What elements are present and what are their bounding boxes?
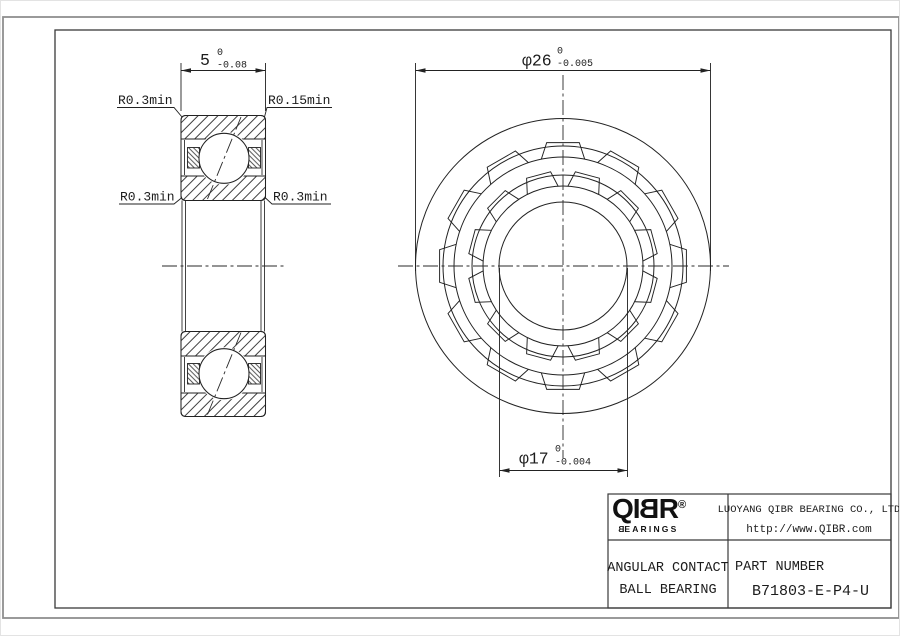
front-view: φ26 0 -0.005 φ17 0 -0.004 <box>398 47 729 478</box>
section-bottom-half <box>181 332 266 417</box>
cage-section-left <box>188 364 200 385</box>
cage-pocket <box>488 310 519 341</box>
registered-trademark-symbol: ® <box>678 499 686 511</box>
logo-sub-letters: EARINGS <box>624 524 678 534</box>
logo-letter-r: R <box>659 493 678 524</box>
cage-pocket <box>607 191 638 222</box>
product-type-line1: ANGULAR CONTACT <box>607 561 729 576</box>
company-website: http://www.QIBR.com <box>746 524 872 536</box>
arrowhead-left <box>416 68 426 73</box>
section-width-dimension: 5 0 -0.08 <box>181 48 266 111</box>
product-type-line2: BALL BEARING <box>619 583 716 598</box>
section-top-half <box>181 116 266 201</box>
part-number-label: PART NUMBER <box>735 560 824 575</box>
radius-label-mid-left: R0.3min <box>120 190 175 205</box>
drawing-canvas: 5 0 -0.08 R0.3min R0.15min R0.3min R0.3m… <box>1 1 900 636</box>
od-tol-lower: -0.005 <box>557 59 593 70</box>
od-value: φ26 <box>522 52 552 71</box>
cage-section-right <box>249 148 261 169</box>
qibr-logo: QIBR® BEARINGS <box>612 495 728 534</box>
width-value: 5 <box>200 51 210 70</box>
logo-sub-letter-b-mirrored: B <box>616 525 624 534</box>
leader-top-left <box>117 108 182 118</box>
cage-section-left <box>188 148 200 169</box>
radius-label-top-left: R0.3min <box>118 93 173 108</box>
arrowhead-left <box>181 68 191 73</box>
logo-letters-qi: QI <box>612 493 640 524</box>
part-number-value: B71803-E-P4-U <box>752 583 869 600</box>
qibr-logo-wordmark: QIBR® <box>612 495 728 523</box>
drawing-sheet: 5 0 -0.08 R0.3min R0.15min R0.3min R0.3m… <box>0 0 900 636</box>
od-tol-upper: 0 <box>557 47 563 58</box>
radius-label-mid-right: R0.3min <box>273 190 328 205</box>
bore-diameter-dimension: φ17 0 -0.004 <box>500 268 628 477</box>
arrowhead-right <box>701 68 711 73</box>
width-tol-lower: -0.08 <box>217 61 247 72</box>
section-view: 5 0 -0.08 R0.3min R0.15min R0.3min R0.3m… <box>117 48 332 417</box>
extension-lines <box>500 268 628 477</box>
arrowhead-right <box>256 68 266 73</box>
sheet-inner-border <box>55 30 891 608</box>
bore-value: φ17 <box>519 450 549 469</box>
company-name: LUOYANG QIBR BEARING CO., LTD <box>718 504 900 516</box>
cage-pocket <box>607 310 638 341</box>
logo-letter-b-mirrored: B <box>640 495 659 523</box>
bore-tol-lower: -0.004 <box>555 458 591 469</box>
cage-section-right <box>249 364 261 385</box>
width-tol-upper: 0 <box>217 48 223 59</box>
arrowhead-right <box>618 468 628 473</box>
leader-top-right <box>265 108 333 118</box>
qibr-logo-bearings-text: BEARINGS <box>616 525 728 534</box>
bore-tol-upper: 0 <box>555 445 561 456</box>
arrowhead-left <box>500 468 510 473</box>
cage-pocket <box>488 191 519 222</box>
radius-label-top-right: R0.15min <box>268 93 330 108</box>
